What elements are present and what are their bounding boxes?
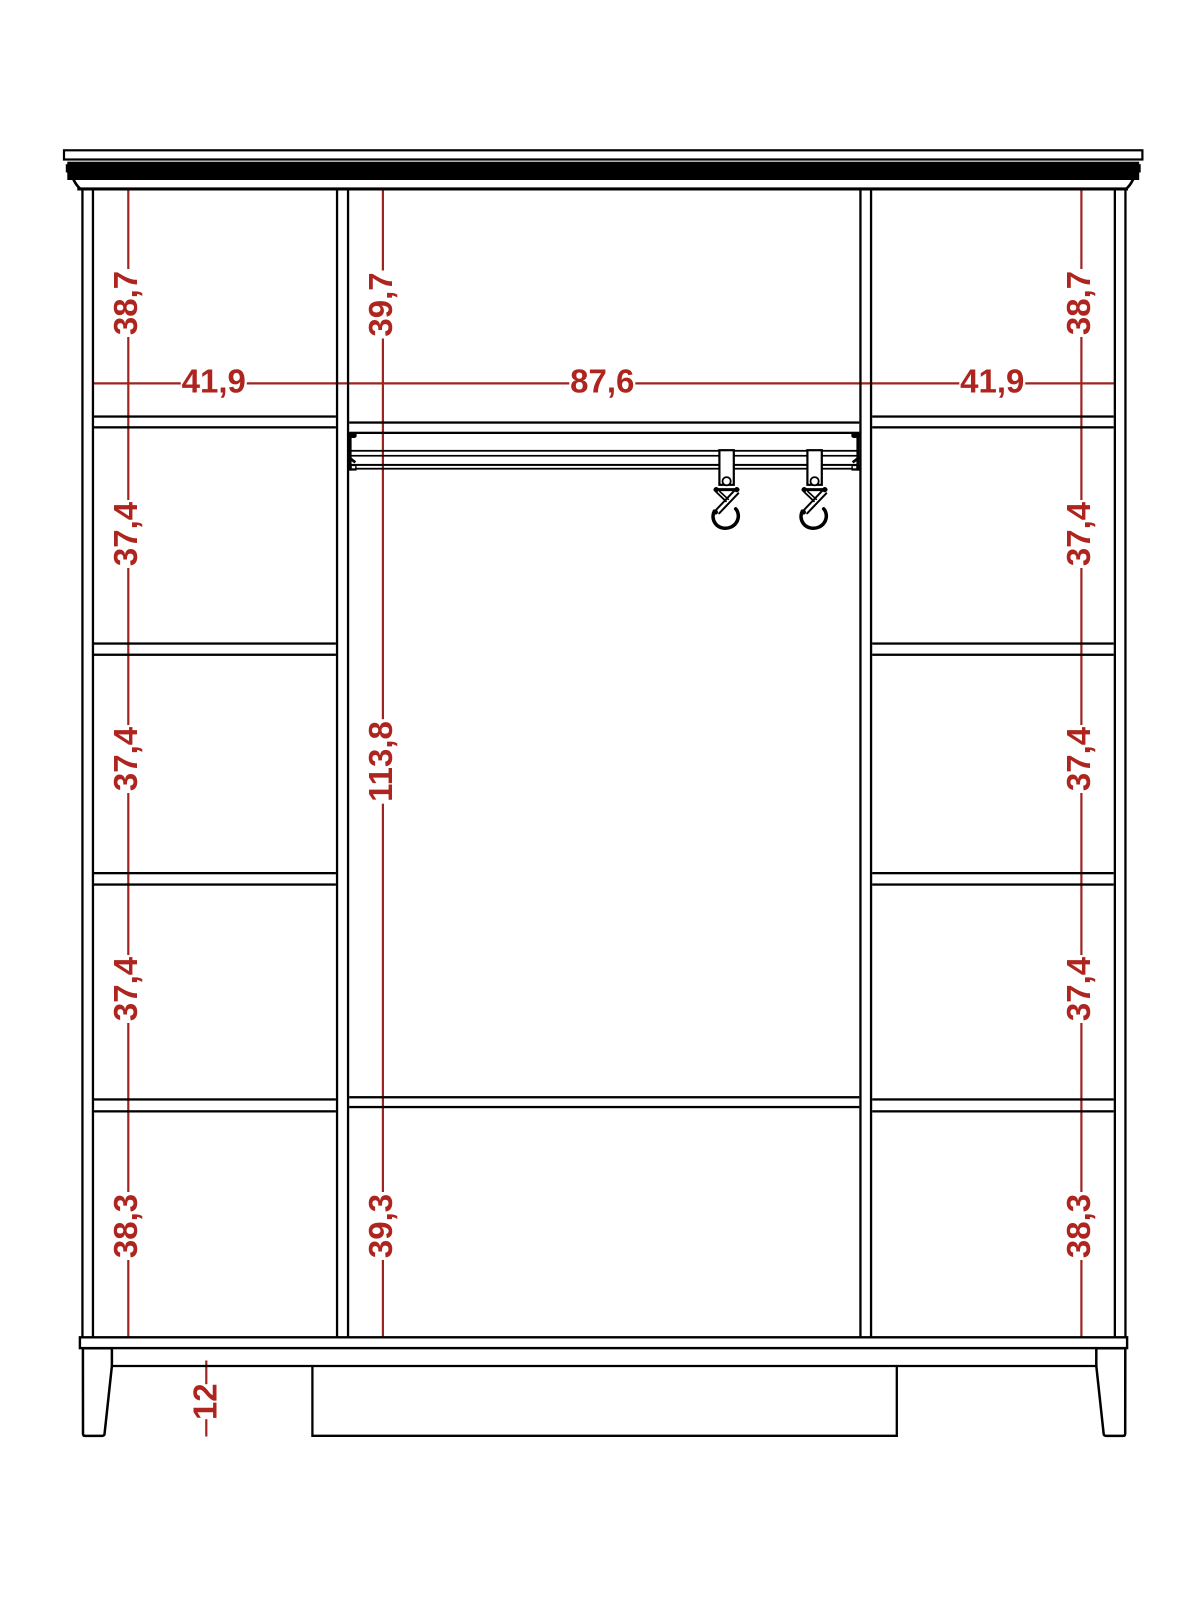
svg-text:41,9: 41,9 bbox=[182, 362, 246, 399]
svg-text:38,7: 38,7 bbox=[1060, 271, 1097, 335]
svg-text:41,9: 41,9 bbox=[960, 362, 1024, 399]
svg-text:87,6: 87,6 bbox=[570, 362, 634, 399]
svg-text:37,4: 37,4 bbox=[107, 726, 144, 791]
svg-text:12: 12 bbox=[187, 1383, 224, 1420]
svg-text:39,3: 39,3 bbox=[362, 1194, 399, 1258]
svg-text:37,4: 37,4 bbox=[107, 956, 144, 1021]
svg-text:38,3: 38,3 bbox=[107, 1194, 144, 1258]
svg-text:38,3: 38,3 bbox=[1060, 1194, 1097, 1258]
svg-text:37,4: 37,4 bbox=[1060, 501, 1097, 566]
svg-text:39,7: 39,7 bbox=[362, 272, 399, 336]
svg-text:37,4: 37,4 bbox=[1060, 956, 1097, 1021]
svg-text:113,8: 113,8 bbox=[362, 721, 399, 802]
svg-text:38,7: 38,7 bbox=[107, 271, 144, 335]
svg-text:37,4: 37,4 bbox=[1060, 726, 1097, 791]
svg-text:37,4: 37,4 bbox=[107, 501, 144, 566]
